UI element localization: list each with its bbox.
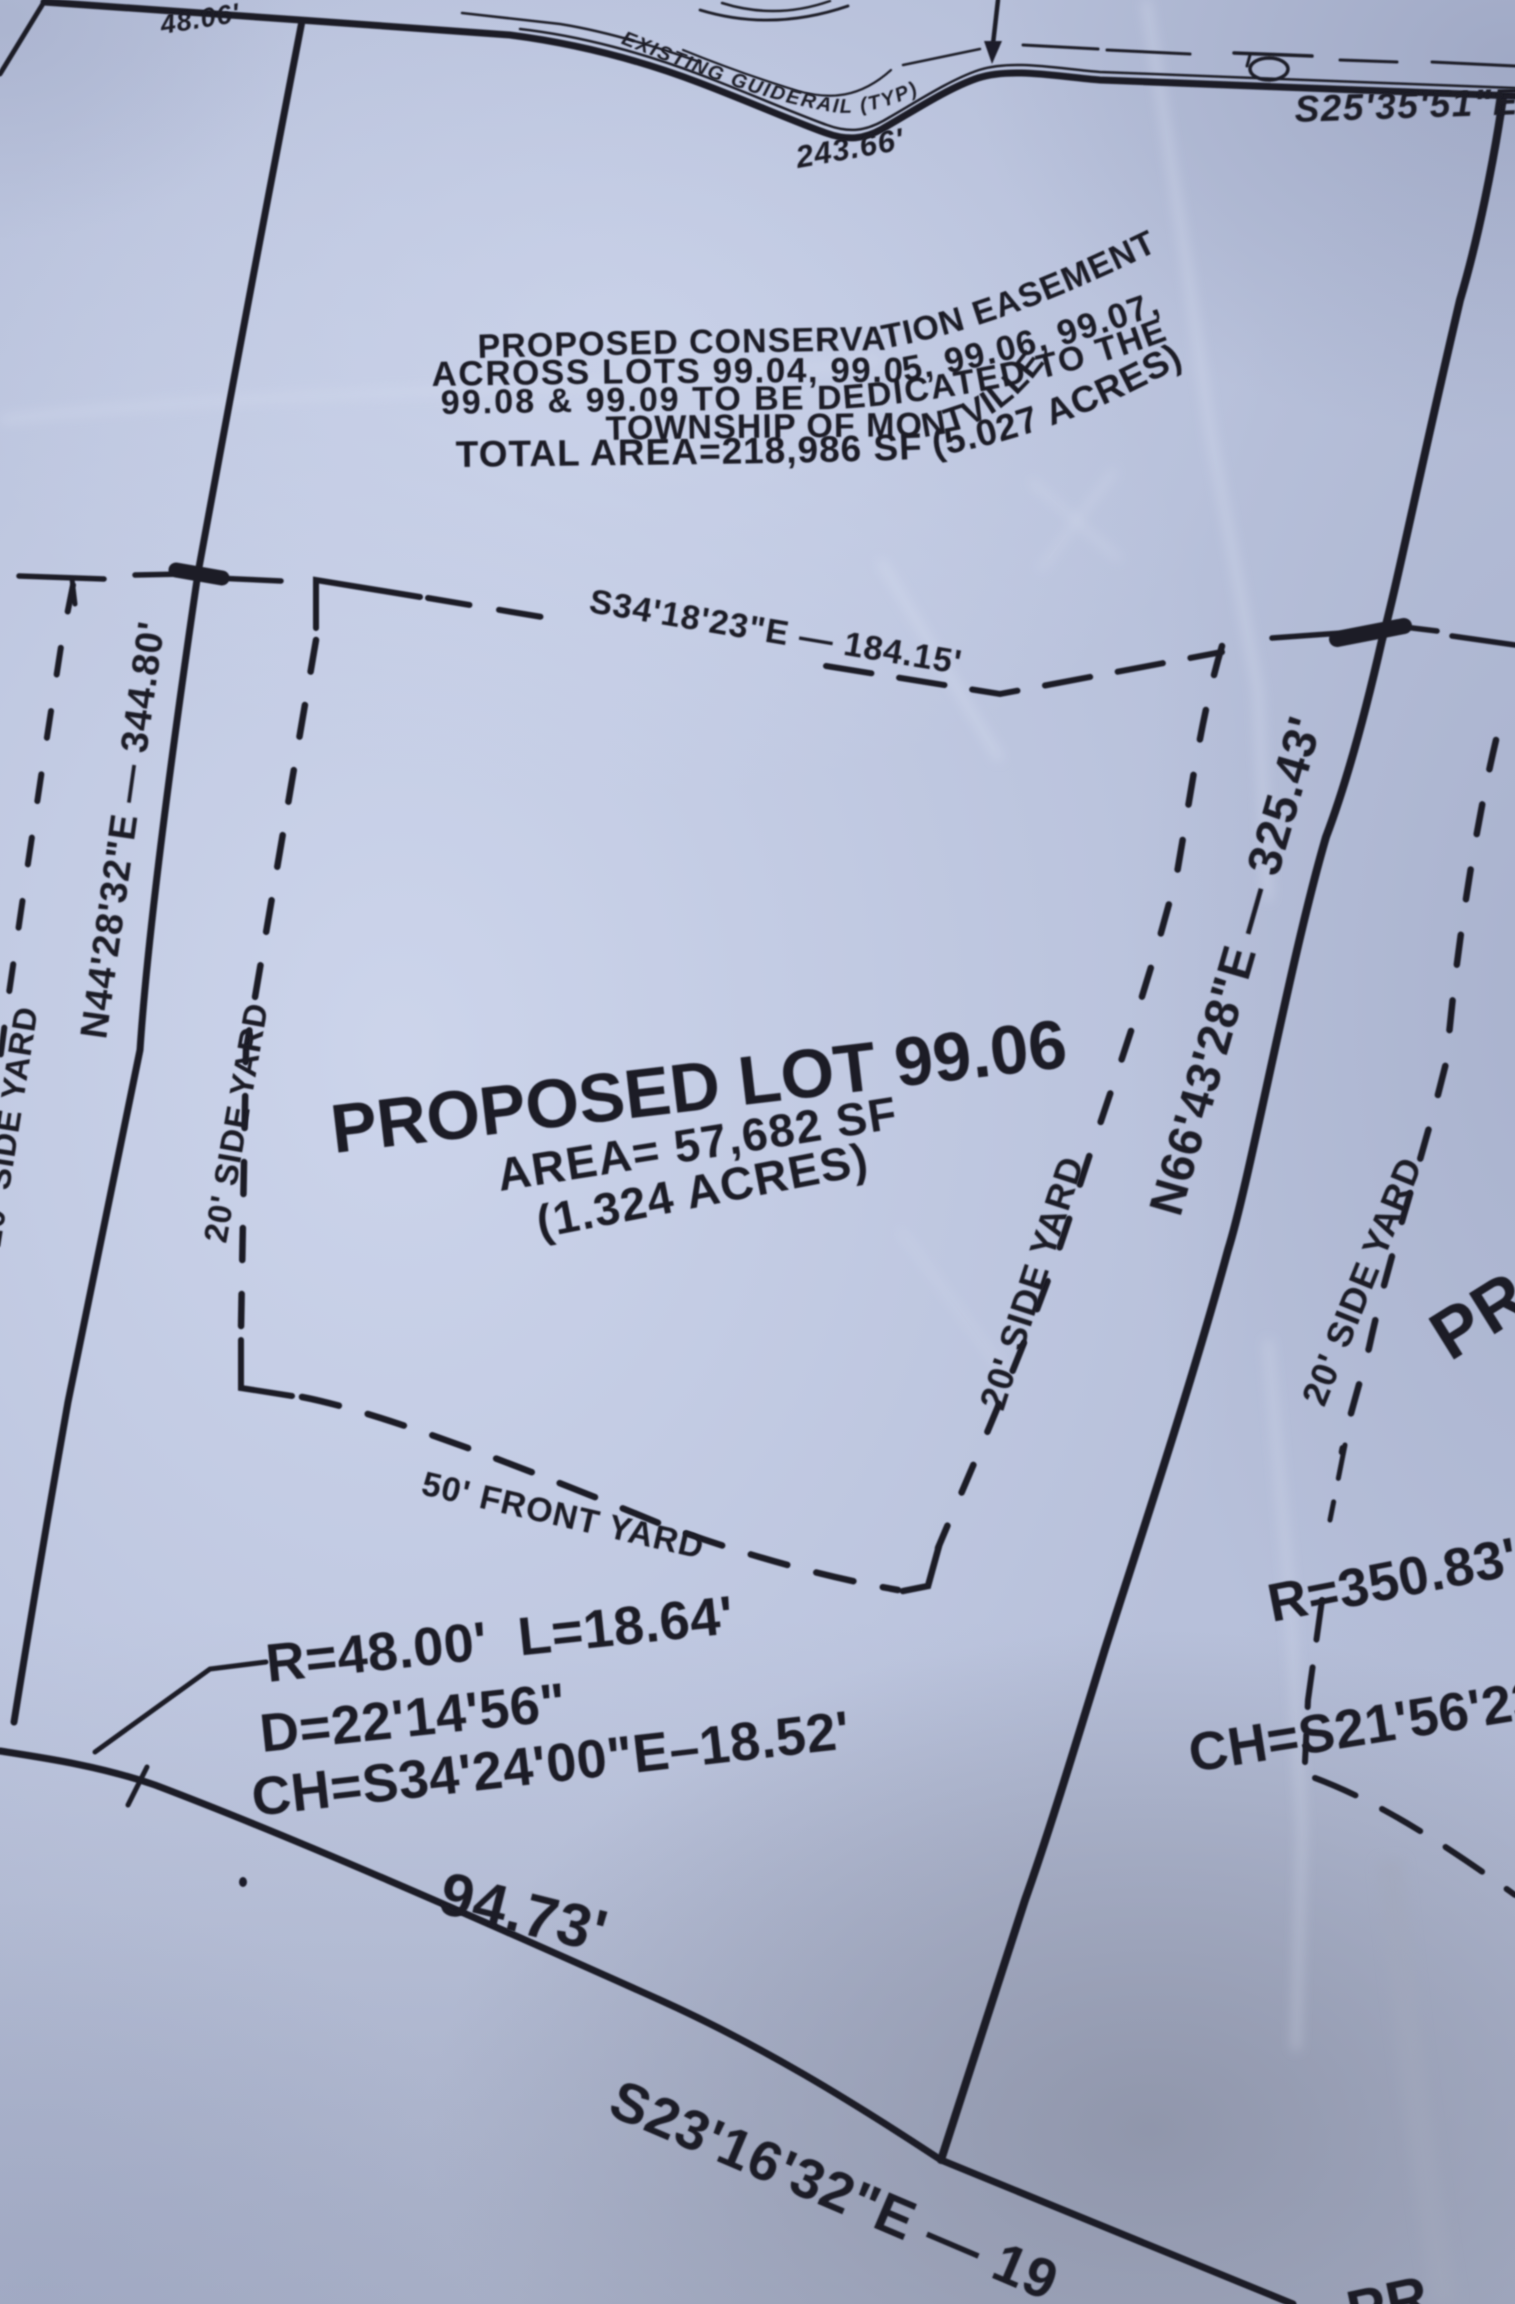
svg-text:S25'35'51"E: S25'35'51"E: [1294, 81, 1515, 130]
